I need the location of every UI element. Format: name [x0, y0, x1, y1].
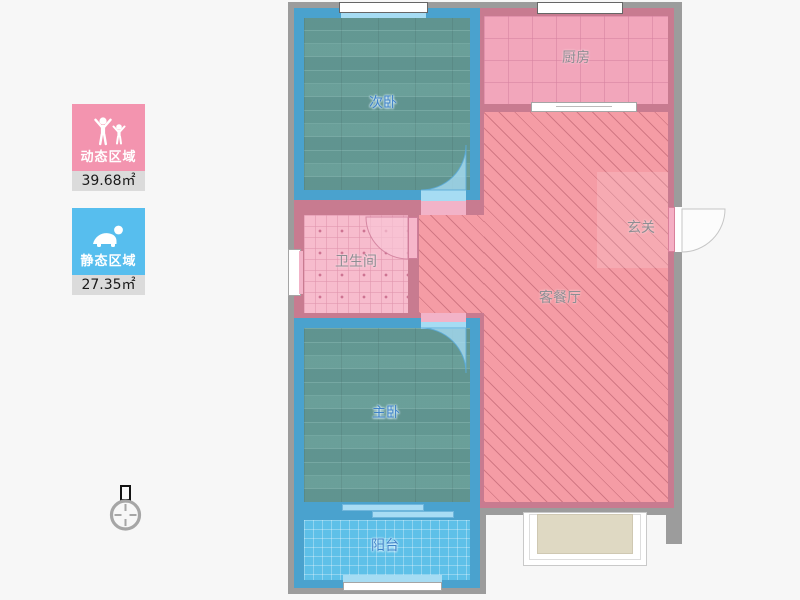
floorplan: 次卧 厨房 卫生间 客餐厅 玄关 主卧 阳台 — [0, 0, 800, 600]
label-master-bedroom: 主卧 — [372, 406, 400, 420]
entry-door-arc — [682, 209, 725, 252]
bathroom-door-arc — [366, 217, 408, 259]
door-arcs — [280, 0, 740, 600]
secondary-bedroom-door-arc — [421, 145, 466, 190]
label-secondary-bedroom: 次卧 — [369, 96, 397, 110]
label-kitchen: 厨房 — [562, 51, 590, 65]
label-living-dining: 客餐厅 — [539, 291, 581, 305]
label-bathroom: 卫生间 — [335, 255, 377, 269]
master-bedroom-door-arc — [421, 328, 466, 373]
label-entry-hall: 玄关 — [627, 221, 655, 235]
label-balcony: 阳台 — [371, 539, 399, 553]
